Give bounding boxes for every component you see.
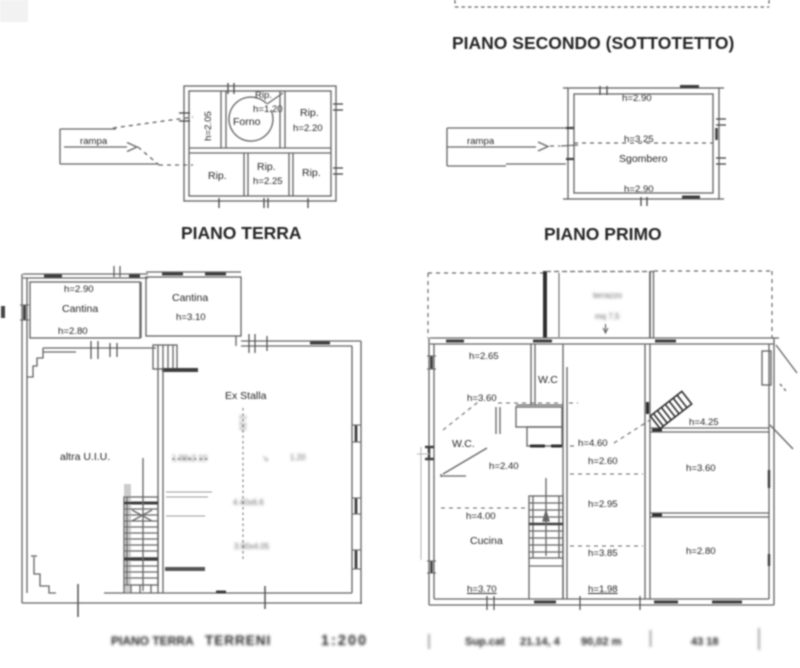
svg-text:Rip.: Rip.	[257, 161, 276, 173]
svg-text:Cantina: Cantina	[62, 303, 98, 315]
svg-text:h=2.25: h=2.25	[253, 176, 283, 187]
svg-text:h=3.60: h=3.60	[467, 393, 497, 404]
svg-text:W.C.: W.C.	[452, 438, 475, 450]
svg-text:PIANO PRIMO: PIANO PRIMO	[544, 224, 662, 244]
svg-text:3.90x4.05: 3.90x4.05	[234, 542, 270, 551]
svg-text:h=2.05: h=2.05	[203, 111, 214, 141]
svg-text:h=2.80: h=2.80	[686, 546, 716, 557]
svg-text:1.99x2.10: 1.99x2.10	[172, 454, 208, 463]
svg-text:h=2.95: h=2.95	[588, 499, 618, 510]
svg-text:h=2.65: h=2.65	[469, 351, 499, 362]
svg-text:altra U.I.U.: altra U.I.U.	[60, 451, 110, 463]
svg-text:90,02 m: 90,02 m	[581, 636, 622, 648]
svg-text:terrazzo: terrazzo	[593, 291, 622, 300]
svg-text:1.20: 1.20	[290, 453, 306, 462]
svg-text:PIANO TERRA: PIANO TERRA	[111, 634, 194, 648]
svg-text:h=1.20: h=1.20	[253, 104, 283, 115]
svg-text:h=2.90: h=2.90	[64, 284, 94, 295]
svg-text:Ex Stalla: Ex Stalla	[225, 390, 267, 402]
svg-text:PIANO TERRA: PIANO TERRA	[181, 223, 302, 243]
svg-text:Sup.cat: Sup.cat	[465, 636, 505, 648]
svg-text:Cantina: Cantina	[172, 292, 208, 304]
svg-text:W.C: W.C	[538, 374, 558, 386]
svg-text:Rip.: Rip.	[300, 107, 319, 119]
svg-text:Rip.: Rip.	[302, 167, 321, 179]
svg-text:h=3.60: h=3.60	[686, 463, 716, 474]
svg-text:h=4.00: h=4.00	[466, 511, 496, 522]
svg-text:h=2.60: h=2.60	[588, 456, 618, 467]
svg-text:21.14, 4: 21.14, 4	[520, 636, 561, 648]
svg-text:h=3.85: h=3.85	[588, 548, 618, 559]
svg-text:Sgombero: Sgombero	[619, 153, 668, 165]
svg-text:h=2.20: h=2.20	[293, 123, 323, 134]
svg-text:Cucina: Cucina	[470, 535, 503, 547]
svg-text:Forno: Forno	[233, 116, 261, 128]
svg-text:TERRENI: TERRENI	[205, 633, 271, 648]
svg-text:h=3.70: h=3.70	[467, 584, 497, 595]
svg-text:mq 7,5: mq 7,5	[595, 312, 620, 321]
svg-text:Rip.: Rip.	[208, 170, 227, 182]
svg-text:h=4.25: h=4.25	[689, 417, 719, 428]
svg-text:↘: ↘	[262, 454, 269, 463]
svg-text:4.40x6.6: 4.40x6.6	[233, 498, 264, 507]
svg-text:h=3.10: h=3.10	[176, 312, 206, 323]
svg-text:1:200: 1:200	[321, 633, 368, 649]
svg-text:PIANO SECONDO (SOTTOTETTO): PIANO SECONDO (SOTTOTETTO)	[452, 33, 734, 53]
svg-text:h=3.25: h=3.25	[624, 134, 654, 145]
svg-text:h=4.60: h=4.60	[578, 438, 608, 449]
svg-text:h=2.80: h=2.80	[58, 326, 88, 337]
svg-text:rampa: rampa	[80, 136, 108, 147]
svg-text:43 18: 43 18	[691, 636, 719, 648]
svg-text:h=1.98: h=1.98	[588, 584, 618, 595]
svg-text:h=2.90: h=2.90	[622, 93, 652, 104]
svg-text:rampa: rampa	[467, 136, 495, 147]
svg-text:h=2.90: h=2.90	[624, 184, 654, 195]
svg-text:h=2.40: h=2.40	[489, 461, 519, 472]
svg-text:2.20: 2.20	[238, 415, 247, 431]
svg-text:Rip.: Rip.	[255, 90, 272, 101]
